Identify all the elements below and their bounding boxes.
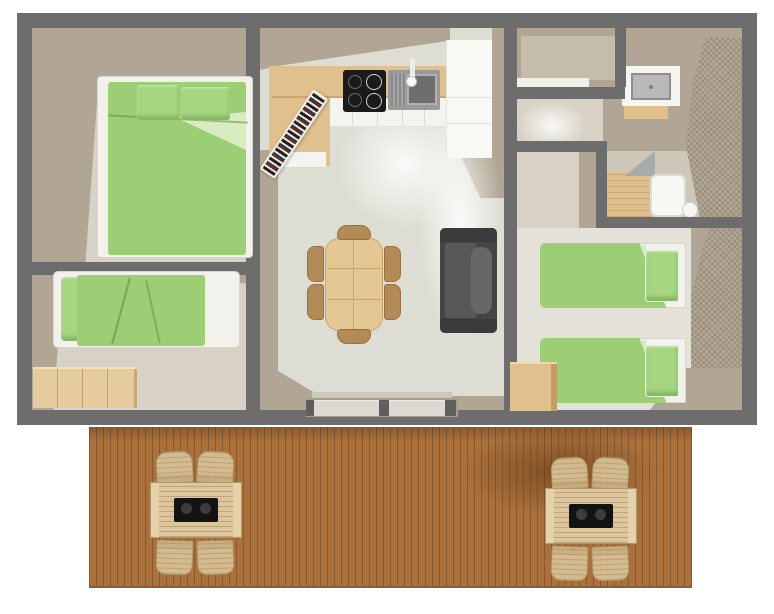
tray-knob: [595, 509, 606, 520]
picnic-chair: [550, 456, 589, 491]
faucet-head: [406, 76, 417, 87]
bedside-cube: [510, 362, 557, 411]
dining-chair: [337, 225, 371, 240]
sofa-arm: [440, 228, 497, 242]
picnic-chair: [196, 539, 234, 575]
tray-knob: [200, 503, 211, 514]
door-jamb: [445, 400, 456, 416]
twin-bed-pillow: [645, 250, 679, 302]
burner: [366, 93, 382, 109]
double-bed-pillow: [137, 85, 179, 120]
wall-segment: [504, 28, 517, 410]
picnic-chair: [196, 450, 235, 485]
wall-segment: [596, 141, 607, 228]
twin-bed-pillow: [645, 345, 679, 397]
picnic-set: [543, 457, 639, 581]
dining-chair: [337, 329, 371, 344]
faucet: [410, 58, 415, 78]
burner: [366, 74, 382, 90]
table-seam: [327, 268, 381, 269]
dining-chair: [384, 246, 401, 282]
dining-chair: [307, 246, 324, 282]
storage-shelf: [33, 367, 137, 408]
sofa-back-cushion: [471, 247, 492, 314]
dining-chair: [307, 284, 324, 320]
wall-segment: [615, 28, 626, 87]
tray-knob: [181, 503, 192, 514]
double-bed-pillow: [181, 87, 230, 120]
fridge: [446, 40, 492, 158]
twin-bed-duvet: [540, 243, 640, 308]
picnic-chair: [155, 450, 194, 485]
wall-segment: [600, 217, 742, 228]
picnic-chair: [591, 545, 629, 581]
sink-drainboard: [391, 74, 406, 106]
table-seam: [353, 240, 354, 329]
table-seam: [327, 299, 381, 300]
sliding-door-panel: [314, 400, 379, 416]
picnic-set: [148, 451, 244, 575]
single-bed-duvet: [77, 275, 205, 346]
door-jamb: [379, 400, 389, 416]
dining-table: [325, 238, 383, 331]
tray-knob: [576, 509, 587, 520]
wall-segment: [517, 87, 625, 99]
picnic-chair: [591, 456, 630, 491]
sliding-door-panel: [389, 400, 445, 416]
burner: [348, 93, 362, 107]
picnic-chair: [155, 539, 193, 575]
door-jamb: [306, 400, 314, 416]
burner: [348, 75, 362, 89]
picnic-chair: [550, 545, 588, 581]
floor-plan: [0, 0, 774, 614]
dining-chair: [384, 284, 401, 320]
wall-segment: [517, 141, 603, 152]
sofa-arm: [440, 319, 497, 333]
